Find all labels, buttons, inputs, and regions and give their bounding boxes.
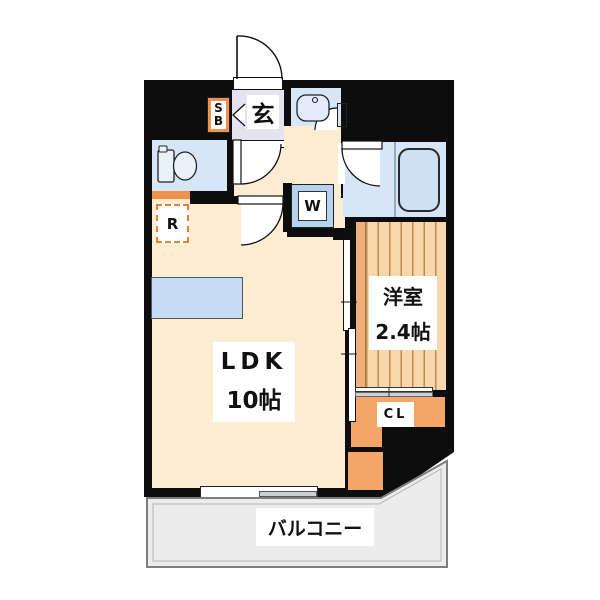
sliding-door-panel-2 (348, 328, 356, 422)
refrigerator-letter: R (167, 215, 179, 233)
balcony-text: バルコニー (268, 514, 363, 541)
western-room-edge-plank (356, 222, 366, 390)
washroom-floor (291, 88, 341, 126)
western-room-name: 洋室 (383, 281, 423, 310)
bathroom-divider (394, 142, 396, 217)
pipe-space (348, 452, 383, 490)
balcony-label: バルコニー (256, 508, 374, 546)
wall-hall-ldk (190, 196, 238, 204)
toilet-sill (152, 191, 190, 199)
entrance-text: 玄 (252, 95, 275, 129)
sliding-door-panel-1 (343, 239, 351, 331)
floor-plan: W S B R 玄 LDK 10帖 洋室 2.4帖 CL バルコニー (0, 0, 600, 600)
ldk-size: 10帖 (226, 381, 281, 415)
ldk-label: LDK 10帖 (213, 342, 295, 422)
shoe-box-letter-b: B (214, 115, 223, 128)
shoe-box-label: S B (211, 101, 226, 129)
closet-floor-extension (351, 427, 382, 447)
entrance-door-opening (233, 77, 283, 90)
kitchen-counter (152, 278, 242, 318)
entrance-door-arc (237, 36, 282, 79)
closet-sliding-door-2 (355, 392, 433, 397)
washer-label: W (298, 191, 327, 221)
entrance-label: 玄 (247, 95, 279, 129)
closet-label: CL (377, 402, 414, 427)
refrigerator-box: R (156, 204, 189, 243)
balcony-window-panel (259, 491, 317, 497)
washer-letter: W (304, 197, 321, 215)
ldk-name: LDK (221, 349, 288, 375)
western-room-label: 洋室 2.4帖 (369, 276, 437, 350)
wall-toilet-hall (227, 140, 234, 204)
entrance-step (232, 140, 284, 148)
closet-text: CL (384, 407, 408, 422)
western-room-size: 2.4帖 (375, 316, 430, 345)
washroom-pillar (337, 103, 347, 127)
toilet-room-floor (152, 140, 227, 191)
